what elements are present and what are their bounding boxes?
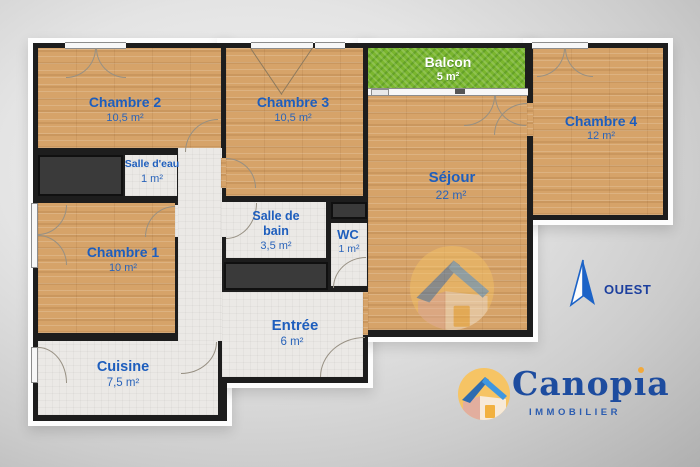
door-gap-chambre-4 <box>527 103 533 136</box>
room-label-cuisine: Cuisine <box>97 360 149 375</box>
room-label-chambre-3: Chambre 3 <box>257 95 329 109</box>
brand-wordmark: Canopıa <box>512 367 670 400</box>
balcony-door-handle-mid <box>455 89 465 94</box>
floorplan-image: { "rooms": { "chambre2": {"name": "Chamb… <box>0 0 700 467</box>
room-label-salle-de-bain-1: Salle de <box>252 210 299 223</box>
room-label-balcon: Balcon <box>425 55 472 69</box>
door-cuisine-exterior <box>31 347 38 383</box>
brand-text-i: ı <box>634 364 648 403</box>
room-label-wc: WC <box>337 228 359 241</box>
watermark-house-logo <box>410 246 494 330</box>
window-chambre-3-right <box>315 42 345 49</box>
french-door-chambre-1 <box>31 203 38 268</box>
door-gap-chambre-1 <box>175 205 178 237</box>
compass-arrow-icon <box>566 258 600 310</box>
compass-direction-label: OUEST <box>604 282 651 297</box>
room-area-balcon: 5 m² <box>437 72 460 83</box>
closet-chambre-2 <box>38 155 123 196</box>
brand-tagline: IMMOBILIER <box>529 407 621 418</box>
canopia-house-icon <box>458 368 510 420</box>
room-label-salle-deau: Salle d'eau <box>125 159 179 170</box>
room-label-chambre-1: Chambre 1 <box>87 245 159 259</box>
closet-entree <box>224 262 328 290</box>
room-label-entree: Entrée <box>272 318 319 333</box>
hallway-corridor <box>178 155 222 341</box>
balcony-door-handle-left <box>371 89 389 96</box>
room-area-cuisine: 7,5 m² <box>107 378 140 390</box>
brand-text-post: a <box>647 364 669 403</box>
room-area-chambre-1: 10 m² <box>109 263 137 274</box>
room-area-salle-deau: 1 m² <box>141 174 163 185</box>
balcony-sliding-door <box>368 88 528 96</box>
room-label-chambre-2: Chambre 2 <box>89 95 161 109</box>
room-area-chambre-2: 10,5 m² <box>106 113 143 124</box>
room-area-sejour: 22 m² <box>436 189 467 201</box>
room-area-entree: 6 m² <box>281 337 304 349</box>
brand-text-pre: Canop <box>512 364 634 403</box>
room-label-salle-de-bain-2: bain <box>263 225 289 238</box>
closet-wc <box>331 202 367 219</box>
room-area-wc: 1 m² <box>339 244 360 255</box>
door-gap-sejour-entree <box>363 292 368 335</box>
window-chambre-3-left <box>251 42 313 49</box>
room-label-chambre-4: Chambre 4 <box>565 114 637 128</box>
room-area-salle-de-bain: 3,5 m² <box>260 241 291 252</box>
room-area-chambre-4: 12 m² <box>587 131 615 142</box>
room-label-sejour: Séjour <box>429 170 476 185</box>
room-area-chambre-3: 10,5 m² <box>274 113 311 124</box>
